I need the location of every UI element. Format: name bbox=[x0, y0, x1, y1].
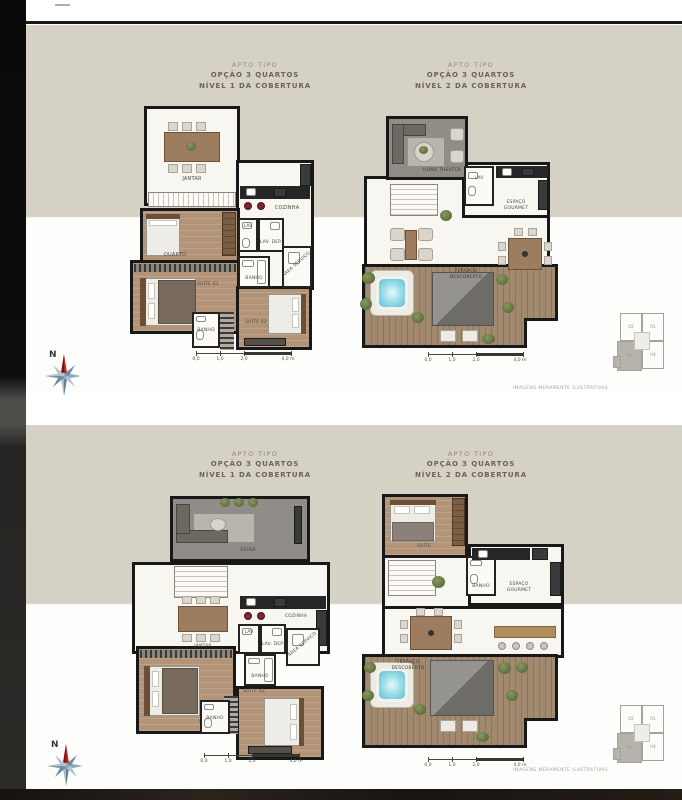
keyplan-core bbox=[634, 724, 650, 742]
headboard bbox=[301, 294, 306, 334]
dresser bbox=[244, 338, 286, 346]
header-line: APTO TIPO bbox=[140, 449, 370, 459]
header-line: NÍVEL 2 DA COBERTURA bbox=[356, 81, 586, 92]
sink bbox=[272, 628, 282, 636]
room-label-jantar: JANTAR bbox=[162, 176, 222, 183]
plant bbox=[506, 690, 518, 701]
keyplan-unit-tab bbox=[613, 748, 621, 760]
floorplan-opt2-level2: SUÍTE BANHO ESPAÇO GOURMET bbox=[356, 490, 570, 768]
sink bbox=[470, 560, 482, 566]
scale-tick-label: 1,0 bbox=[448, 358, 455, 363]
pillow bbox=[149, 220, 177, 226]
stairs bbox=[388, 560, 436, 596]
bar-stool bbox=[526, 642, 534, 650]
lounger bbox=[440, 330, 456, 342]
plan-header-level1: APTO TIPO OPÇÃO 3 QUARTOS NÍVEL 1 DA COB… bbox=[140, 449, 370, 481]
bar-stool bbox=[498, 642, 506, 650]
chair bbox=[454, 620, 462, 629]
lounger bbox=[462, 720, 478, 732]
room-label-banho: BANHO bbox=[240, 674, 280, 680]
room-label-suite02: SUÍTE 02 bbox=[232, 320, 280, 326]
plant bbox=[502, 302, 514, 313]
scale-tick-label: 1,0 bbox=[216, 357, 223, 362]
pillow bbox=[152, 671, 159, 687]
terrace-notch bbox=[524, 718, 558, 748]
pendant-lamp bbox=[522, 251, 528, 257]
stool bbox=[244, 202, 252, 210]
chair bbox=[168, 164, 178, 173]
wardrobe bbox=[222, 212, 236, 256]
pillow bbox=[292, 314, 299, 328]
sink bbox=[204, 704, 214, 710]
stairs bbox=[148, 192, 236, 207]
chair bbox=[434, 608, 443, 616]
chair bbox=[400, 620, 408, 629]
scale-tick-label: 0,0 bbox=[200, 759, 207, 764]
header-line: OPÇÃO 3 QUARTOS bbox=[356, 70, 586, 81]
stove bbox=[532, 548, 548, 560]
chair bbox=[182, 164, 192, 173]
room-label-cozinha: COZINHA bbox=[270, 614, 322, 620]
chair bbox=[498, 256, 506, 265]
chair bbox=[196, 122, 206, 131]
room-label-estar: ESTAR bbox=[228, 548, 268, 554]
room-label-suite02: SUÍTE 02 bbox=[230, 689, 278, 695]
gazebo bbox=[430, 660, 494, 716]
unit-keyplan: 02 01 03 04 bbox=[612, 700, 670, 766]
page-bottom-edge bbox=[0, 789, 682, 800]
chair bbox=[196, 164, 206, 173]
sink bbox=[246, 188, 256, 196]
header-line: OPÇÃO 3 QUARTOS bbox=[140, 459, 370, 470]
fridge bbox=[538, 180, 548, 210]
room-label-suite: SUÍTE bbox=[404, 544, 444, 550]
cooktop bbox=[274, 188, 286, 197]
room-label-banho: BANHO bbox=[461, 584, 501, 590]
chair bbox=[196, 596, 206, 604]
cooktop bbox=[274, 598, 286, 607]
page-edge-artifact bbox=[55, 0, 73, 6]
armchair bbox=[418, 228, 433, 241]
header-line: APTO TIPO bbox=[140, 60, 370, 70]
lounger bbox=[462, 330, 478, 342]
closet-strip bbox=[140, 650, 232, 658]
chair bbox=[528, 228, 537, 236]
stool bbox=[244, 612, 252, 620]
keyplan-unit-tab bbox=[613, 356, 621, 368]
disclaimer-text: IMAGENS MERAMENTE ILUSTRATIVAS bbox=[436, 768, 608, 773]
scale-tick-label: 2,0 bbox=[248, 759, 255, 764]
armchair bbox=[418, 248, 433, 261]
sink bbox=[478, 550, 488, 558]
pillow bbox=[414, 506, 430, 514]
scale-tick-label: 2,0 bbox=[240, 357, 247, 362]
room-label-home-theater: HOME THEATER bbox=[412, 168, 472, 174]
room-label-lav: LAV bbox=[459, 176, 499, 182]
scale-tick-label: 4,0 m bbox=[290, 759, 303, 764]
plant bbox=[362, 272, 375, 284]
plant bbox=[220, 498, 230, 507]
sink bbox=[502, 168, 512, 176]
blanket bbox=[162, 668, 198, 714]
dining-table bbox=[178, 606, 228, 632]
plant bbox=[440, 210, 452, 221]
chair bbox=[196, 634, 206, 642]
headboard bbox=[299, 698, 304, 746]
bar-stool bbox=[512, 642, 520, 650]
chair bbox=[182, 634, 192, 642]
scale-tick-label: 2,0 bbox=[472, 358, 479, 363]
scale-tick-label: 1,0 bbox=[224, 759, 231, 764]
coffee-table bbox=[405, 230, 417, 260]
plan-header-level1: APTO TIPO OPÇÃO 3 QUARTOS NÍVEL 1 DA COB… bbox=[140, 60, 370, 92]
sink bbox=[270, 222, 280, 230]
scale-tick-label: 0,0 bbox=[424, 358, 431, 363]
fridge bbox=[550, 562, 561, 596]
plant bbox=[476, 732, 489, 742]
toilet bbox=[242, 238, 250, 248]
stairs bbox=[390, 184, 438, 216]
compass-rose: N bbox=[46, 736, 84, 786]
chair bbox=[210, 596, 220, 604]
header-line: NÍVEL 2 DA COBERTURA bbox=[356, 470, 586, 481]
plant bbox=[419, 146, 428, 154]
headboard bbox=[146, 214, 180, 219]
header-line: OPÇÃO 3 QUARTOS bbox=[140, 70, 370, 81]
floorplan-opt1-level1: JANTAR COZINHA LAV LAV. DEP. ÁREA SERVIÇ… bbox=[124, 106, 314, 361]
sink bbox=[248, 658, 260, 664]
pillow bbox=[152, 691, 159, 707]
pillow bbox=[290, 704, 297, 720]
chaise bbox=[176, 504, 190, 534]
tv-panel bbox=[294, 506, 302, 544]
compass-rose: N bbox=[44, 346, 82, 396]
header-line: APTO TIPO bbox=[356, 449, 586, 459]
disclaimer-text: IMAGENS MERAMENTE ILUSTRATIVAS bbox=[436, 386, 608, 391]
stool bbox=[257, 612, 265, 620]
scale-tick-label: 0,0 bbox=[192, 357, 199, 362]
jacuzzi bbox=[376, 668, 408, 702]
plant bbox=[414, 704, 426, 715]
unit-keyplan: 02 01 03 04 bbox=[612, 308, 670, 374]
room-label-terraco: TERRAÇO DESCOBERTO bbox=[386, 660, 430, 672]
pillow bbox=[394, 506, 410, 514]
sofa bbox=[392, 124, 404, 164]
header-line: NÍVEL 1 DA COBERTURA bbox=[140, 470, 370, 481]
plant bbox=[482, 334, 495, 344]
chair bbox=[454, 634, 462, 643]
chair bbox=[182, 596, 192, 604]
plan-header-level2: APTO TIPO OPÇÃO 3 QUARTOS NÍVEL 2 DA COB… bbox=[356, 449, 586, 481]
plant bbox=[234, 498, 244, 507]
room-label-suite01: SUÍTE 01 bbox=[186, 282, 230, 288]
room-label-jantar: JANTAR bbox=[176, 644, 230, 650]
toilet bbox=[468, 186, 476, 196]
armchair bbox=[450, 150, 464, 163]
chair bbox=[168, 122, 178, 131]
bar-counter bbox=[494, 626, 556, 638]
room-label-espaco-gourmet: ESPAÇO GOURMET bbox=[502, 582, 536, 594]
scale-tick-label: 4,0 m bbox=[282, 357, 295, 362]
room-label-quarto: QUARTO bbox=[150, 252, 200, 259]
pendant-lamp bbox=[428, 630, 434, 636]
sink bbox=[196, 316, 206, 322]
plant bbox=[516, 662, 528, 673]
coffee-table bbox=[210, 518, 226, 531]
terrace-notch bbox=[524, 318, 558, 348]
room-label-banho2: BANHO bbox=[195, 716, 235, 722]
fridge bbox=[300, 164, 311, 186]
pillow bbox=[290, 724, 297, 740]
room-label-espaco-gourmet: ESPAÇO GOURMET bbox=[499, 200, 533, 212]
top-divider-line bbox=[26, 21, 682, 24]
pillow bbox=[148, 303, 155, 319]
blanket bbox=[392, 522, 434, 541]
pillow bbox=[292, 298, 299, 312]
floorplan-opt2-level1: ESTAR JANTAR COZINHA LAV LAV. DEP. ÁREA … bbox=[124, 490, 338, 764]
headboard bbox=[140, 278, 146, 326]
scale-tick-label: 4,0 m bbox=[514, 358, 527, 363]
header-line: NÍVEL 1 DA COBERTURA bbox=[140, 81, 370, 92]
cooktop bbox=[522, 168, 534, 176]
plant bbox=[496, 274, 508, 285]
chair bbox=[416, 608, 425, 616]
table-plant bbox=[186, 142, 196, 151]
armchair bbox=[390, 228, 405, 241]
wardrobe bbox=[452, 498, 465, 546]
plant bbox=[248, 498, 258, 507]
room-label-lav-dep: LAV. DEP. bbox=[251, 240, 291, 246]
plant bbox=[498, 662, 511, 674]
scale-bar: 0,0 1,0 2,0 4,0 m bbox=[428, 351, 528, 364]
header-line: OPÇÃO 3 QUARTOS bbox=[356, 459, 586, 470]
room-label-banho2: BANHO bbox=[186, 328, 226, 334]
bar-stool bbox=[540, 642, 548, 650]
room-label-terraco: TERRAÇO DESCOBERTO bbox=[444, 269, 488, 281]
stairs bbox=[174, 566, 228, 598]
keyplan-core bbox=[634, 332, 650, 350]
room-label-banho: BANHO bbox=[234, 276, 274, 282]
lounger bbox=[440, 720, 456, 732]
chair bbox=[182, 122, 192, 131]
jacuzzi bbox=[376, 276, 408, 310]
scale-bar: 0,0 1,0 2,0 4,0 m bbox=[196, 350, 296, 363]
plant bbox=[360, 298, 372, 310]
sink bbox=[246, 598, 256, 606]
pillow bbox=[148, 283, 155, 299]
brochure-page: APTO TIPO OPÇÃO 3 QUARTOS NÍVEL 1 DA COB… bbox=[0, 0, 682, 800]
chair bbox=[210, 634, 220, 642]
chair bbox=[514, 228, 523, 236]
scale-tick-label: 0,0 bbox=[424, 763, 431, 768]
room-label-cozinha: COZINHA bbox=[262, 205, 312, 212]
chair bbox=[544, 242, 552, 251]
page-left-binding bbox=[0, 0, 26, 800]
chair bbox=[400, 634, 408, 643]
toilet bbox=[470, 574, 478, 584]
closet-strip bbox=[134, 264, 236, 272]
armchair bbox=[450, 128, 464, 141]
headboard bbox=[144, 666, 150, 716]
plant bbox=[412, 312, 424, 323]
plan-header-level2: APTO TIPO OPÇÃO 3 QUARTOS NÍVEL 2 DA COB… bbox=[356, 60, 586, 92]
plant bbox=[364, 662, 376, 673]
headboard bbox=[390, 500, 436, 505]
plant bbox=[362, 690, 374, 701]
scale-bar: 0,0 1,0 2,0 4,0 m bbox=[204, 752, 304, 765]
sink bbox=[242, 260, 254, 267]
compass-north-label: N bbox=[49, 350, 57, 360]
chair bbox=[544, 256, 552, 265]
chair bbox=[498, 242, 506, 251]
floorplan-opt1-level2: HOME THEATER LAV ESPAÇO GOURMET bbox=[356, 106, 568, 361]
armchair bbox=[390, 248, 405, 261]
header-line: APTO TIPO bbox=[356, 60, 586, 70]
compass-north-label: N bbox=[51, 740, 59, 750]
bed bbox=[264, 698, 304, 746]
plant bbox=[432, 576, 445, 588]
